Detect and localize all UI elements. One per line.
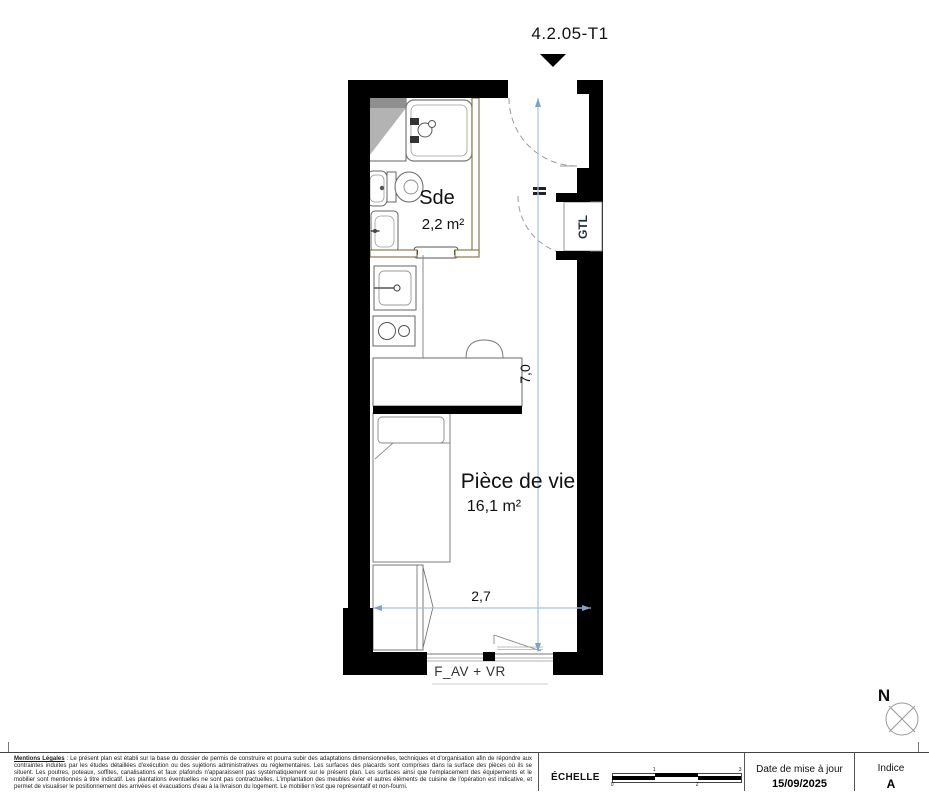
wall-bottom-left-block: [343, 608, 373, 675]
index-value: A: [887, 777, 896, 791]
room-area-sde: 2,2 m²: [422, 216, 465, 233]
window-bay: F_AV + VR: [427, 635, 553, 688]
gtl-label: GTL: [576, 215, 590, 239]
north-label: N: [878, 686, 890, 705]
dim-arrow-top: [535, 98, 541, 107]
dim-width-label: 2,7: [471, 588, 491, 604]
date-value: 15/09/2025: [772, 778, 827, 790]
index-label: Indice: [878, 763, 905, 774]
shower-bracket-bottom: [410, 136, 419, 143]
window-label: F_AV + VR: [434, 664, 505, 679]
shower-bracket-top: [410, 118, 419, 125]
kitchen-fixtures: [373, 255, 423, 358]
kitchen-faucet-knob: [394, 285, 400, 291]
floor-plan-sheet: 4.2.05-T1: [0, 0, 929, 800]
pillow: [378, 417, 444, 443]
scale-seg-1: [612, 776, 655, 780]
toilet-bowl-inner: [404, 180, 418, 194]
half-wall: [373, 406, 522, 414]
wall-top-left: [348, 80, 508, 98]
cooktop-burner-small: [399, 326, 410, 337]
plan-title: 4.2.05-T1: [531, 24, 608, 43]
frame-tick-right: [918, 742, 919, 752]
legal-notice: Mentions Légales : Le présent plan est é…: [0, 753, 538, 800]
scale-seg-2: [655, 773, 698, 777]
scale-tick-0: 0: [611, 782, 614, 788]
gtl-stub-bottom: [556, 251, 590, 260]
room-label-piece-de-vie: Pièce de vie: [461, 470, 575, 493]
shower-knob-icon: [429, 121, 436, 128]
floor-plan-drawing: 4.2.05-T1: [0, 0, 929, 745]
gtl-stub-top: [556, 193, 590, 202]
scale-tick-3: 3: [739, 767, 742, 773]
partition-vertical: [472, 98, 479, 253]
partition-bottom-left: [370, 250, 417, 257]
scale-bar: 0 1 2 3: [612, 767, 741, 787]
washbasin-faucet-icon: [380, 186, 384, 190]
room-label-sde: Sde: [419, 187, 455, 209]
scale-label: ÉCHELLE: [551, 772, 600, 783]
frame-tick-left: [8, 742, 9, 752]
scale-tick-2: 2: [696, 782, 699, 788]
legal-text: Mentions Légales : Le présent plan est é…: [14, 756, 532, 791]
dim-height-label: 7,0: [517, 364, 533, 384]
vanity-faucet-knob: [373, 229, 377, 233]
table: [373, 358, 522, 406]
door-hinge-mark-2: [533, 192, 546, 195]
index-cell: Indice A: [855, 753, 927, 800]
door-hinge-mark: [533, 187, 546, 190]
bathroom-fixtures: [366, 98, 472, 258]
door-reveal: [577, 94, 589, 168]
wall-right: [577, 98, 603, 675]
legal-title: Mentions Légales: [14, 756, 65, 762]
wall-bottom-right: [553, 652, 577, 675]
north-compass: N: [878, 686, 918, 735]
scale-seg-3: [698, 776, 741, 780]
wall-left: [348, 98, 370, 652]
wall-bottom-left: [373, 652, 427, 675]
cooktop-burner-large: [379, 323, 396, 340]
shutter-line: [494, 635, 541, 651]
partition-bottom-right: [455, 250, 479, 257]
scale-cell: ÉCHELLE 0 1 2 3: [539, 753, 744, 800]
shower-panel-top: [366, 98, 406, 108]
door-swing-arc: [509, 98, 577, 166]
bathroom-sliding-door: [414, 247, 458, 258]
date-label: Date de mise à jour: [756, 764, 843, 775]
title-block: Mentions Légales : Le présent plan est é…: [0, 752, 929, 800]
room-area-piece-de-vie: 16,1 m²: [467, 498, 522, 515]
window-mullion: [483, 652, 495, 661]
entrance-arrow-icon: [540, 54, 566, 67]
scale-tick-1: 1: [653, 767, 656, 773]
date-cell: Date de mise à jour 15/09/2025: [745, 753, 854, 800]
legal-body: : Le présent plan est établi sur la base…: [14, 756, 532, 790]
chair: [466, 340, 503, 358]
living-room-furniture: [373, 340, 522, 650]
